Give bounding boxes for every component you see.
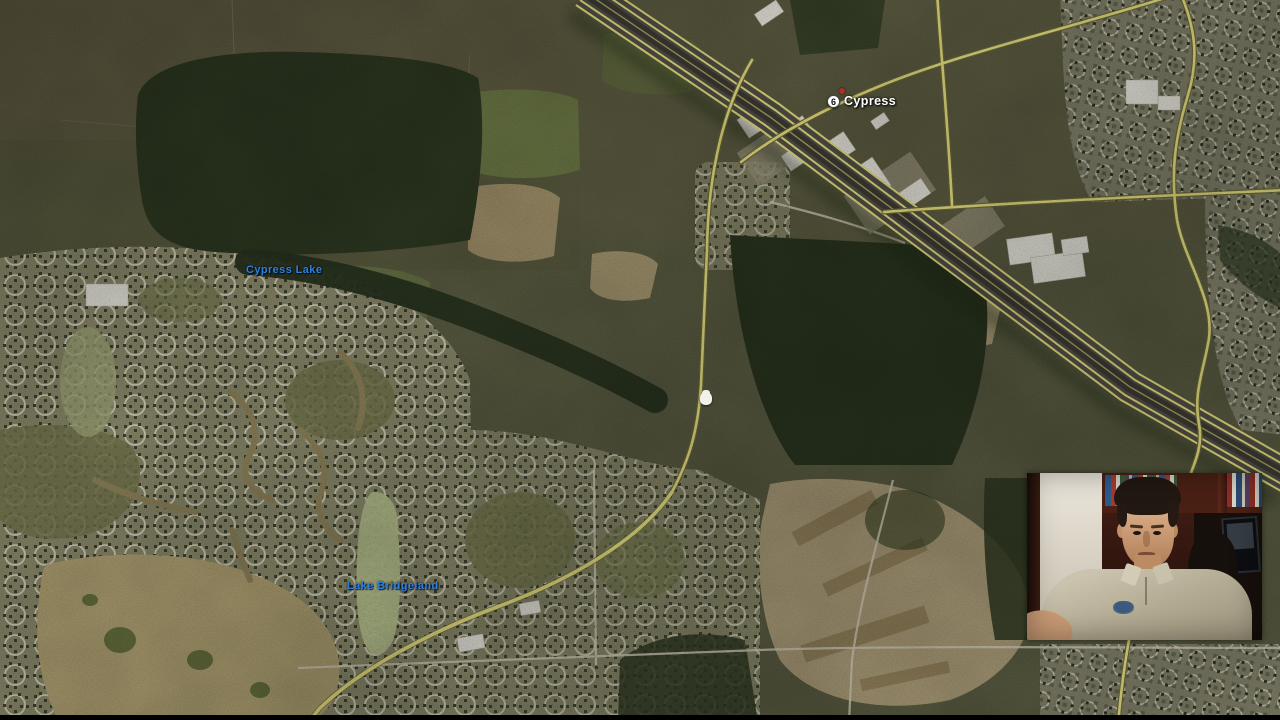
cypress-label: Cypress	[844, 94, 896, 108]
webcam-vignette	[1027, 473, 1262, 640]
cypress-placemark[interactable]: 6 Cypress	[827, 88, 907, 114]
cypress-lake-label[interactable]: Cypress Lake	[246, 264, 322, 276]
webcam-overlay	[1027, 473, 1262, 640]
lake-bridgeland-label[interactable]: Lake Bridgeland	[347, 580, 439, 592]
video-frame: 6 Cypress Cypress Lake Lake Bridgeland	[0, 0, 1280, 720]
hand-cursor-icon	[700, 392, 712, 405]
highway-6-shield-icon: 6	[827, 95, 840, 108]
letterbox-bottom	[0, 715, 1280, 720]
